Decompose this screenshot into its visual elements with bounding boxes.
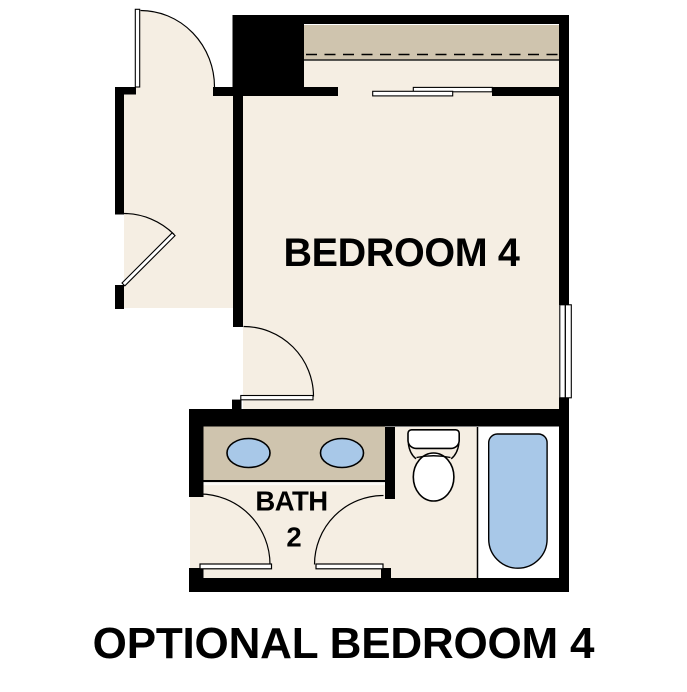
svg-text:BATH: BATH	[255, 486, 327, 517]
svg-text:BEDROOM 4: BEDROOM 4	[283, 231, 519, 275]
svg-text:OPTIONAL BEDROOM 4: OPTIONAL BEDROOM 4	[93, 619, 595, 668]
svg-text:2: 2	[286, 522, 301, 553]
